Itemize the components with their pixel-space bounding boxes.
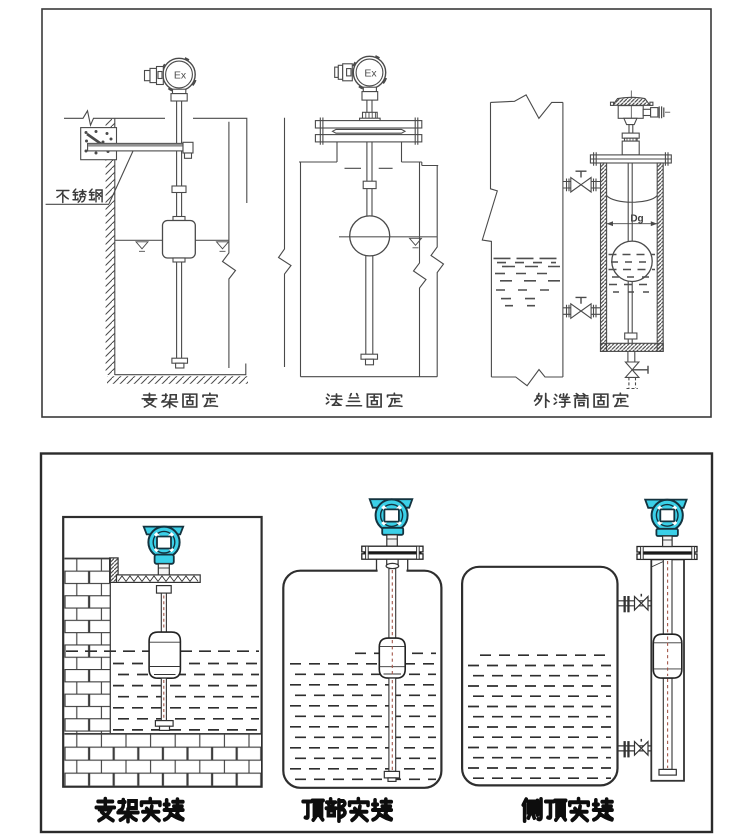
svg-text:Ex: Ex — [364, 68, 377, 80]
svg-text:Ex: Ex — [174, 70, 187, 82]
